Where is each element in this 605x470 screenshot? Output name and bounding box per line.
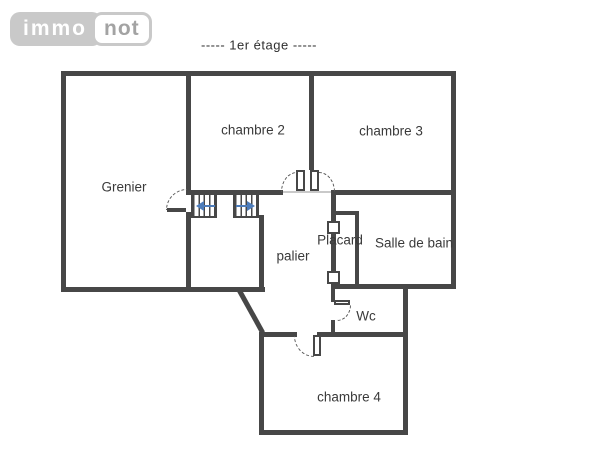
wall-stairwell-right — [259, 215, 264, 292]
wall-grenier-divider-upper — [186, 71, 191, 190]
chambre3-door-arc — [319, 172, 335, 192]
wall-placard-right — [355, 211, 359, 289]
stair-arrow-right-icon — [247, 201, 255, 211]
wall-chambre4-left — [259, 332, 264, 435]
wall-right-exterior — [451, 71, 456, 289]
wall-top-exterior — [61, 71, 456, 76]
room-label-salle-de-bain: Salle de bain — [375, 236, 453, 251]
chambre2-door-arc — [281, 172, 297, 192]
wall-chambre2-chambre3-divider — [309, 71, 314, 170]
immonot-logo: immo not — [10, 12, 152, 46]
wall-left-exterior — [61, 71, 66, 292]
room-label-chambre2: chambre 2 — [221, 123, 285, 138]
wall-bottom-grenier — [61, 287, 265, 292]
wall-chambre4-top-left — [259, 332, 297, 337]
placard-door-marker-bottom — [327, 271, 340, 284]
floor-title: ----- 1er étage ----- — [201, 38, 317, 53]
chambre4-door-leaf — [313, 335, 321, 356]
wall-wc-left-lower — [331, 320, 335, 335]
logo-immo-segment: immo — [10, 12, 102, 46]
wall-grenier-divider-lower — [186, 212, 191, 292]
wall-chambre3-bottom — [331, 190, 456, 195]
room-label-palier: palier — [276, 249, 309, 264]
logo-not-segment: not — [92, 12, 152, 46]
wall-diagonal — [236, 288, 265, 334]
room-label-grenier: Grenier — [101, 180, 146, 195]
wall-chambre4-right — [403, 284, 408, 435]
wc-door-arc — [337, 305, 351, 321]
room-label-chambre4: chambre 4 — [317, 390, 381, 405]
room-label-placard: Placard — [317, 233, 363, 248]
chambre3-door-leaf — [310, 170, 319, 191]
floor-plan-canvas: immo not ----- 1er étage ----- — [0, 0, 605, 470]
wall-bathroom-bottom — [331, 284, 456, 289]
wall-chambre4-bottom — [259, 430, 408, 435]
stair-arrow-left-icon — [196, 201, 204, 211]
chambre2-door-leaf — [296, 170, 305, 191]
stair-arrow-left-shaft — [203, 205, 215, 207]
grenier-door-arc — [166, 189, 187, 210]
chambre4-door-arc — [294, 336, 314, 357]
room-label-wc: Wc — [356, 309, 376, 324]
room-label-chambre3: chambre 3 — [359, 124, 423, 139]
